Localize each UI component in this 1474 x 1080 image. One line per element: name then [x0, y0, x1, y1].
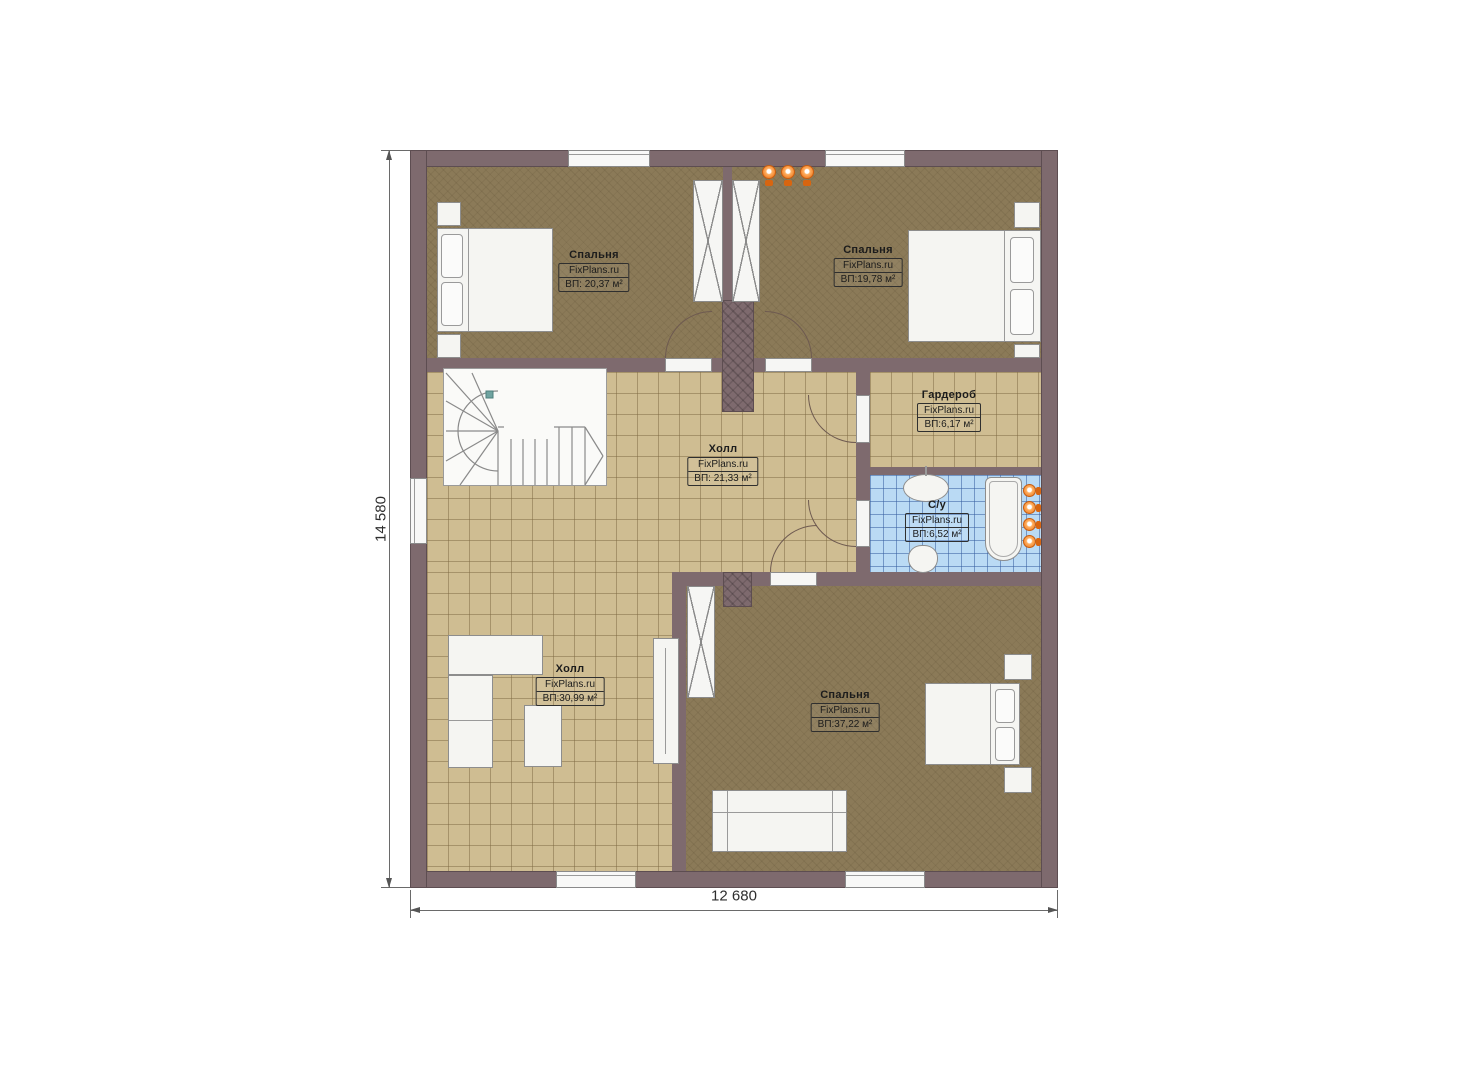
room-info-box: FixPlans.ru ВП:30,99 м²: [536, 677, 605, 706]
window-left: [410, 478, 427, 544]
nightstand: [1004, 767, 1032, 793]
closet-top-left: [693, 180, 723, 302]
dimension-width-label: 12 680: [711, 888, 757, 905]
sofa-bedroom-bottom: [712, 790, 847, 852]
toilet: [908, 545, 938, 573]
room-info-box: FixPlans.ru ВП:37,22 м²: [811, 703, 880, 732]
sink: [903, 474, 949, 502]
room-name: Холл: [687, 443, 758, 455]
door-bedroom-top-right: [765, 358, 812, 372]
window-top-right: [825, 150, 905, 167]
dimension-arrow-down: [386, 878, 392, 888]
room-info-box: FixPlans.ru ВП: 21,33 м²: [687, 457, 758, 486]
dimension-arrow-right: [1048, 907, 1058, 913]
sofa-corner-seat: [448, 675, 493, 768]
sofa-seat-line: [713, 812, 846, 813]
sofa-arm-line: [832, 791, 833, 851]
wall-outer-top: [410, 150, 1058, 167]
sofa-arm-line: [727, 791, 728, 851]
room-area: ВП:30,99 м²: [537, 691, 604, 705]
sofa-cushion-line: [449, 720, 492, 721]
room-name: Спальня: [834, 244, 903, 256]
pillow: [995, 689, 1015, 723]
window-top-left: [568, 150, 650, 167]
wall-outer-right: [1041, 150, 1058, 888]
wall-lamp-base: [1036, 504, 1041, 512]
room-label-bathroom: С/у FixPlans.ru ВП:6,52 м²: [905, 499, 969, 542]
wall-outer-bottom: [410, 871, 1058, 888]
room-name: Спальня: [558, 249, 629, 261]
room-name: Спальня: [811, 689, 880, 701]
wall-lamp-base: [803, 180, 811, 186]
brand-watermark: FixPlans.ru: [537, 678, 604, 691]
brand-watermark: FixPlans.ru: [835, 259, 902, 272]
brand-watermark: FixPlans.ru: [812, 704, 879, 717]
pillow: [995, 727, 1015, 761]
brand-watermark: FixPlans.ru: [688, 458, 757, 471]
room-area: ВП: 20,37 м²: [559, 277, 628, 291]
room-label-bedroom-top-right: Спальня FixPlans.ru ВП:19,78 м²: [834, 244, 903, 287]
floor-plan-page: Спальня FixPlans.ru ВП: 20,37 м² Спальня…: [0, 0, 1474, 1080]
door-bedroom-top-left: [665, 358, 712, 372]
room-name: С/у: [905, 499, 969, 511]
closet-top-right: [732, 180, 760, 302]
window-bottom-right: [845, 871, 925, 888]
room-label-hall-bottom: Холл FixPlans.ru ВП:30,99 м²: [536, 663, 605, 706]
console-line: [665, 648, 666, 754]
console-cabinet: [653, 638, 679, 764]
wall-wardrobe-bathroom: [870, 467, 1041, 475]
room-area: ВП: 21,33 м²: [688, 471, 757, 485]
nightstand: [1004, 654, 1032, 680]
door-bathroom: [856, 500, 870, 547]
room-label-hall-center: Холл FixPlans.ru ВП: 21,33 м²: [687, 443, 758, 486]
room-info-box: FixPlans.ru ВП:6,17 м²: [917, 403, 981, 432]
nightstand: [1014, 202, 1040, 228]
sink-tap: [925, 466, 927, 476]
room-info-box: FixPlans.ru ВП: 20,37 м²: [558, 263, 629, 292]
bed-blanket-line: [990, 684, 991, 764]
dimension-line-horizontal: [410, 910, 1058, 911]
pillow: [441, 234, 463, 278]
nightstand: [437, 334, 461, 358]
nightstand: [437, 202, 461, 226]
wall-lamp-icon: [1023, 535, 1036, 548]
room-area: ВП:19,78 м²: [835, 272, 902, 286]
wall-lamp-base: [1036, 487, 1041, 495]
wall-lamp-icon: [1023, 501, 1036, 514]
sofa-corner-back: [448, 635, 543, 675]
wall-lamp-base: [1036, 521, 1041, 529]
window-bottom-left: [556, 871, 636, 888]
room-info-box: FixPlans.ru ВП:19,78 м²: [834, 258, 903, 287]
wall-lamp-icon: [800, 165, 814, 179]
wall-lamp-icon: [781, 165, 795, 179]
stairs: [443, 368, 607, 486]
dimension-extension: [1057, 890, 1058, 918]
pillow: [1010, 289, 1034, 335]
bathtub: [985, 477, 1022, 561]
pillow: [441, 282, 463, 326]
dimension-arrow-left: [410, 907, 420, 913]
bed-blanket-line: [1004, 231, 1005, 341]
room-name: Холл: [536, 663, 605, 675]
room-label-bedroom-bottom: Спальня FixPlans.ru ВП:37,22 м²: [811, 689, 880, 732]
room-name: Гардероб: [917, 389, 981, 401]
door-bedroom-bottom: [770, 572, 817, 586]
dimension-arrow-up: [386, 150, 392, 160]
room-info-box: FixPlans.ru ВП:6,52 м²: [905, 513, 969, 542]
room-area: ВП:37,22 м²: [812, 717, 879, 731]
stairs-drawing: [444, 369, 608, 487]
dimension-extension: [410, 890, 411, 918]
brand-watermark: FixPlans.ru: [918, 404, 980, 417]
room-label-bedroom-top-left: Спальня FixPlans.ru ВП: 20,37 м²: [558, 249, 629, 292]
room-area: ВП:6,17 м²: [918, 417, 980, 431]
chimney-top: [722, 300, 754, 412]
chimney-bottom: [723, 572, 752, 607]
dimension-height-label: 14 580: [373, 496, 390, 542]
wall-lamp-base: [765, 180, 773, 186]
closet-bedroom-bottom: [687, 586, 715, 698]
pillow: [1010, 237, 1034, 283]
room-label-wardrobe: Гардероб FixPlans.ru ВП:6,17 м²: [917, 389, 981, 432]
brand-watermark: FixPlans.ru: [906, 514, 968, 527]
brand-watermark: FixPlans.ru: [559, 264, 628, 277]
bed-blanket-line: [468, 229, 469, 331]
coffee-table: [524, 705, 562, 767]
door-wardrobe: [856, 395, 870, 443]
room-area: ВП:6,52 м²: [906, 527, 968, 541]
nightstand: [1014, 344, 1040, 358]
wall-lamp-base: [1036, 538, 1041, 546]
wall-lamp-base: [784, 180, 792, 186]
wall-lamp-icon: [762, 165, 776, 179]
wall-lamp-icon: [1023, 518, 1036, 531]
wall-lamp-icon: [1023, 484, 1036, 497]
